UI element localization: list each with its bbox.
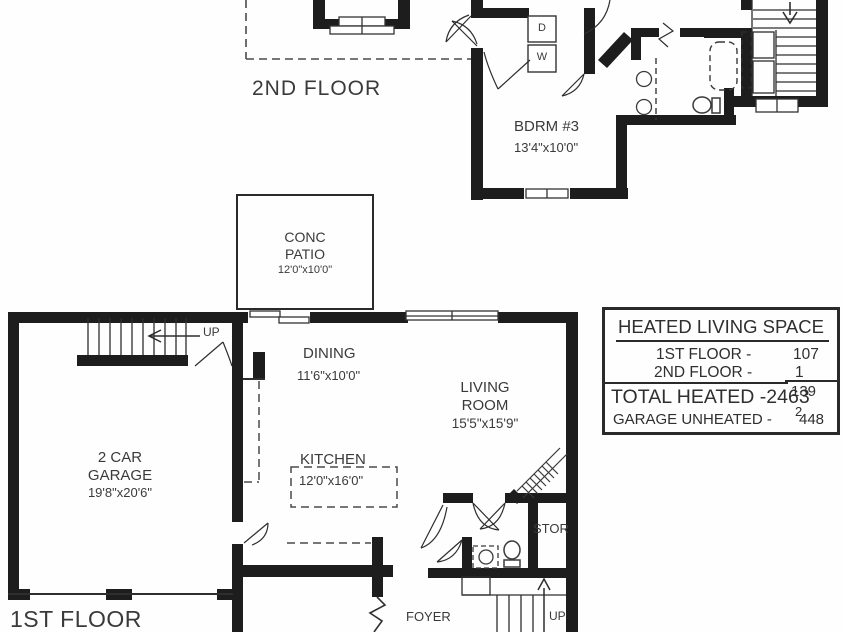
room-dims-bdrm3: 13'4"x10'0"	[514, 141, 578, 156]
second-floor-bath-fixtures	[637, 42, 738, 120]
dryer-label: D	[528, 22, 556, 35]
room-label-garage-line1: 2 CAR	[55, 449, 185, 466]
room-label-bdrm3: BDRM #3	[514, 118, 579, 135]
room-label-kitchen: KITCHEN	[300, 451, 366, 468]
up-label-main-stairs: UP	[203, 326, 220, 340]
legend-divider-short	[785, 380, 837, 382]
heated-living-space-table: HEATED LIVING SPACE 1ST FLOOR - 107 2ND …	[602, 307, 840, 435]
stairs-down-arrow-icon	[783, 2, 797, 23]
room-dims-kitchen: 12'0"x16'0"	[299, 474, 363, 489]
legend-total: TOTAL HEATED -2463	[611, 386, 810, 408]
foyer-up-arrow-icon	[538, 579, 550, 632]
second-floor-stairs	[742, 0, 816, 96]
room-label-storage: STOR	[533, 522, 569, 537]
room-label-patio-line2: PATIO	[245, 246, 365, 262]
washer-label: W	[528, 51, 556, 64]
up-label-foyer-stairs: UP	[549, 610, 566, 624]
legend-garage-label: GARAGE UNHEATED -	[613, 411, 772, 428]
legend-row1-label: 1ST FLOOR -	[656, 346, 751, 364]
room-dims-garage: 19'8"x20'6"	[55, 486, 185, 501]
first-floor-label: 1ST FLOOR	[10, 606, 142, 632]
floorplan-canvas: 2ND FLOOR D W BDRM #3 13'4"x10'0" CONC P…	[0, 0, 843, 632]
room-label-living-line2: ROOM	[430, 397, 540, 414]
legend-divider	[605, 382, 788, 384]
room-dims-living: 15'5"x15'9"	[430, 416, 540, 432]
room-dims-patio: 12'0"x10'0"	[245, 264, 365, 277]
legend-title-underline	[616, 340, 829, 342]
room-label-living-line1: LIVING	[430, 379, 540, 396]
stairs-up-arrow-icon	[149, 330, 200, 342]
room-label-dining: DINING	[303, 345, 356, 362]
room-label-foyer: FOYER	[406, 610, 451, 625]
legend-title: HEATED LIVING SPACE	[605, 316, 837, 337]
legend-row1-value: 107	[793, 346, 819, 364]
room-dims-dining: 11'6"x10'0"	[297, 369, 360, 384]
powder-room-fixtures	[473, 541, 520, 568]
room-label-patio-line1: CONC	[245, 229, 365, 245]
legend-garage-value: 448	[799, 411, 824, 428]
legend-row2-label: 2ND FLOOR -	[654, 364, 752, 382]
second-floor-label: 2ND FLOOR	[252, 77, 381, 101]
front-door-zigzag	[370, 597, 385, 632]
room-label-garage-line2: GARAGE	[55, 467, 185, 484]
